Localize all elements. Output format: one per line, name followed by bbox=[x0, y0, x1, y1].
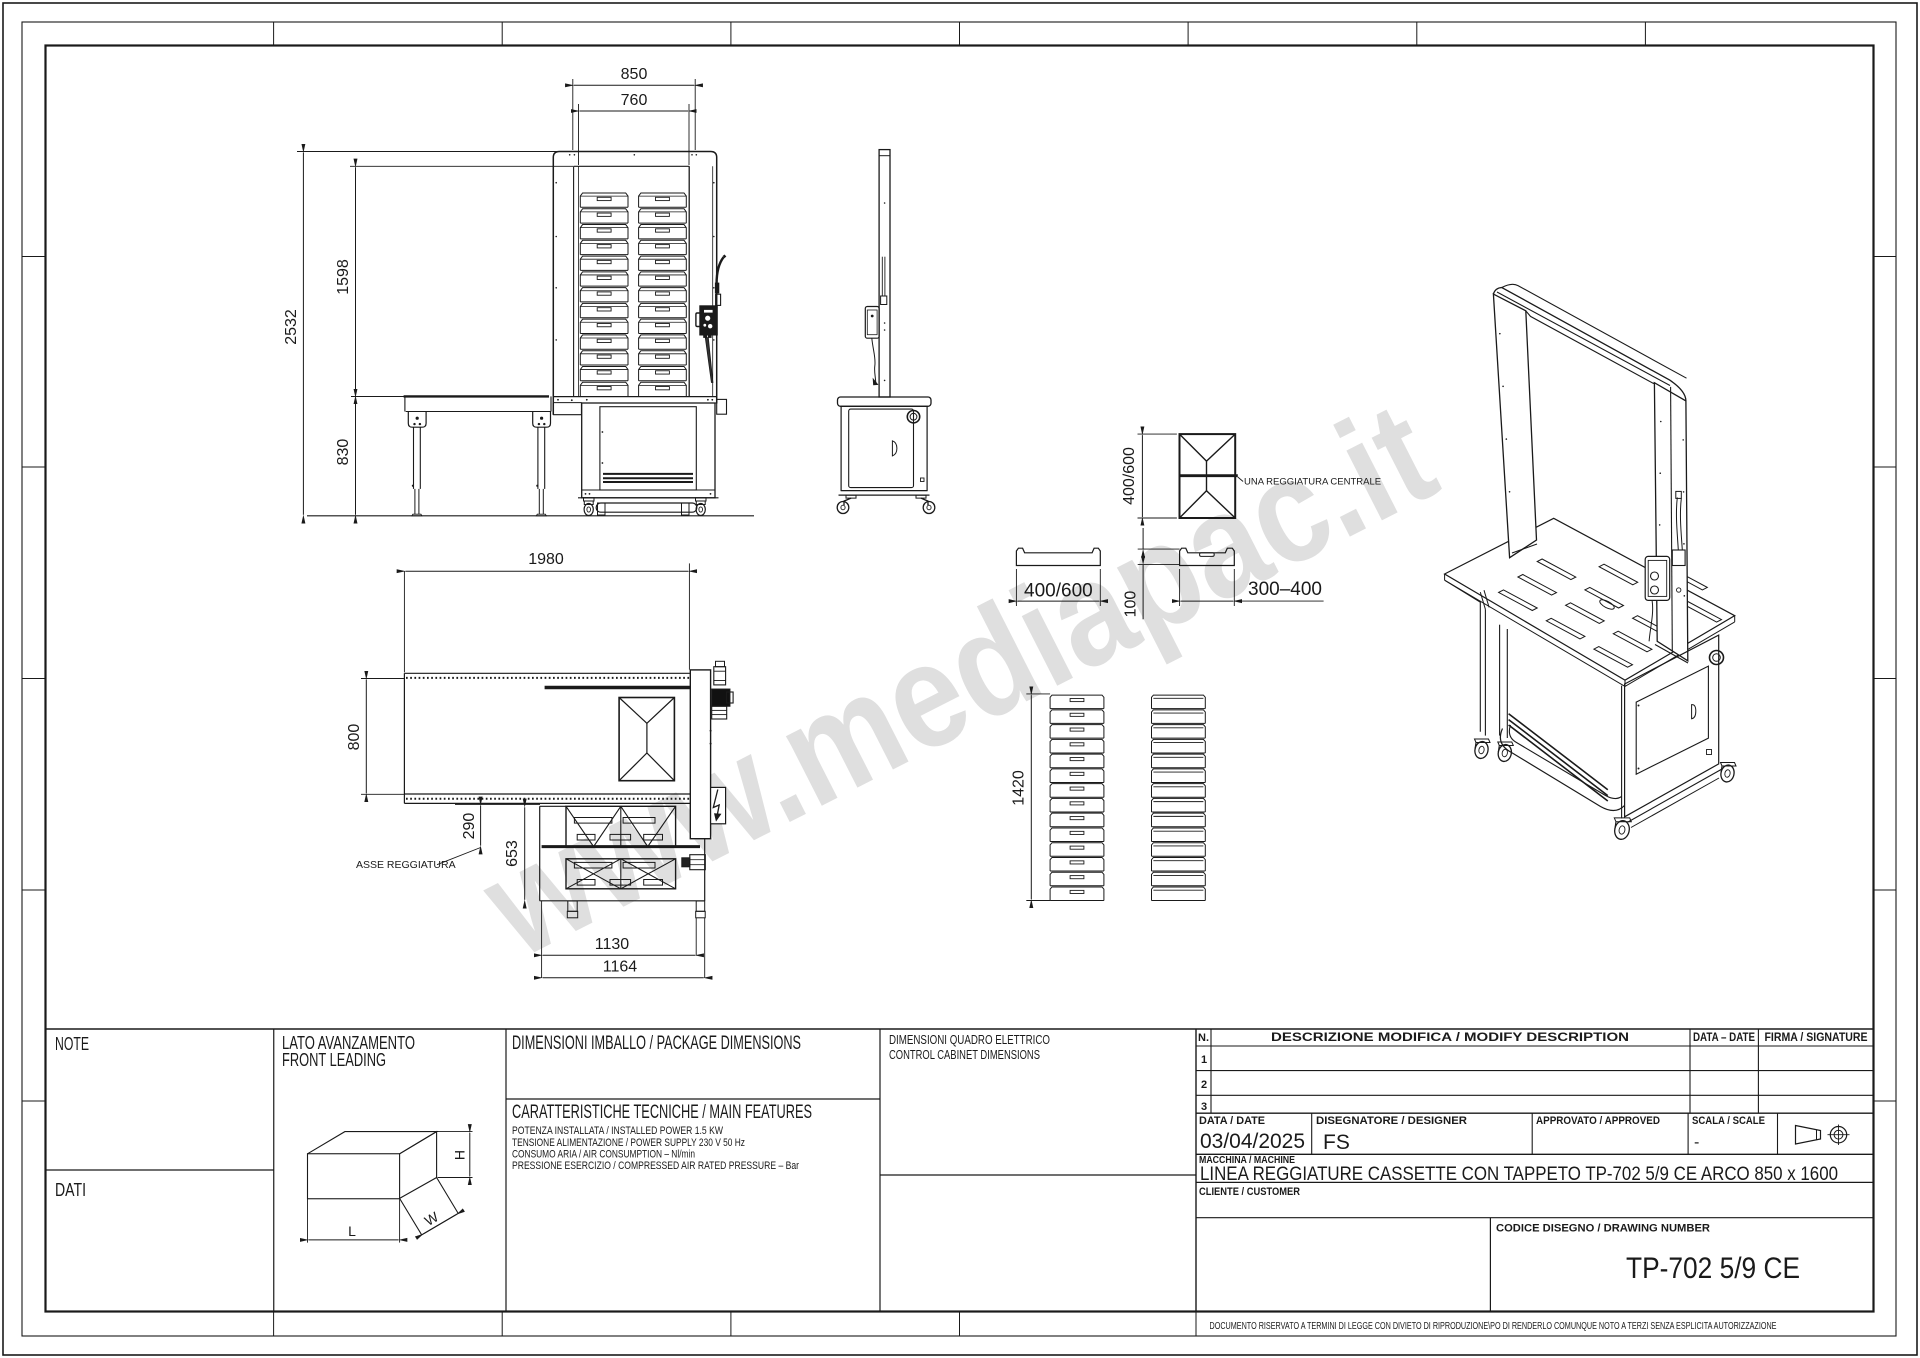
svg-text:TP-702 5/9 CE: TP-702 5/9 CE bbox=[1626, 1252, 1800, 1285]
svg-text:2532: 2532 bbox=[283, 309, 300, 345]
svg-text:POTENZA INSTALLATA / INSTALLED: POTENZA INSTALLATA / INSTALLED POWER 1.5… bbox=[512, 1125, 724, 1137]
svg-text:800: 800 bbox=[346, 724, 363, 751]
svg-text:FIRMA / SIGNATURE: FIRMA / SIGNATURE bbox=[1765, 1030, 1868, 1044]
svg-text:100: 100 bbox=[1123, 591, 1140, 618]
svg-text:N.: N. bbox=[1198, 1032, 1209, 1044]
svg-text:-: - bbox=[1694, 1134, 1699, 1151]
svg-text:CODICE DISEGNO / DRAWING N: CODICE DISEGNO / DRAWING NUMBER bbox=[1496, 1223, 1710, 1235]
svg-text:NOTE: NOTE bbox=[55, 1034, 89, 1054]
svg-text:3: 3 bbox=[1201, 1101, 1207, 1113]
svg-text:ASSE REGGIATURA: ASSE REGGIATURA bbox=[356, 859, 456, 871]
svg-text:LINEA REGGIATURE CASSETTE CON: LINEA REGGIATURE CASSETTE CON TAPPETO TP… bbox=[1200, 1163, 1838, 1185]
svg-text:1164: 1164 bbox=[603, 959, 638, 976]
svg-text:830: 830 bbox=[335, 439, 352, 466]
svg-text:290: 290 bbox=[461, 813, 478, 840]
svg-text:DIMENSIONI IMBALLO / PACKAGE D: DIMENSIONI IMBALLO / PACKAGE DIMENSIONS bbox=[512, 1033, 801, 1054]
svg-text:FS: FS bbox=[1323, 1131, 1350, 1154]
svg-text:L: L bbox=[348, 1223, 356, 1239]
svg-text:APPROVATO / APPROVED: APPROVATO / APPROVED bbox=[1536, 1115, 1660, 1127]
svg-text:1420: 1420 bbox=[1011, 770, 1028, 806]
svg-text:850: 850 bbox=[621, 66, 648, 83]
svg-text:1598: 1598 bbox=[335, 259, 352, 295]
svg-text:DATI: DATI bbox=[55, 1180, 86, 1200]
svg-text:CLIENTE / CUSTOMER: CLIENTE / CUSTOMER bbox=[1199, 1186, 1300, 1198]
svg-text:UNA REGGIATURA CENTRALE: UNA REGGIATURA CENTRALE bbox=[1244, 477, 1381, 488]
svg-text:DIMENSIONI QUADRO ELETTRICO: DIMENSIONI QUADRO ELETTRICO bbox=[889, 1032, 1050, 1047]
svg-text:1: 1 bbox=[1201, 1054, 1207, 1066]
svg-text:1980: 1980 bbox=[528, 551, 564, 568]
svg-text:400/600: 400/600 bbox=[1121, 447, 1138, 505]
svg-text:760: 760 bbox=[621, 92, 648, 109]
svg-text:400/600: 400/600 bbox=[1024, 581, 1093, 602]
svg-text:SCALA / SCALE: SCALA / SCALE bbox=[1692, 1115, 1765, 1127]
svg-text:DATA – DATE: DATA – DATE bbox=[1693, 1030, 1755, 1044]
svg-text:FRONT LEADING: FRONT LEADING bbox=[282, 1050, 386, 1070]
svg-text:03/04/2025: 03/04/2025 bbox=[1200, 1130, 1305, 1153]
svg-text:CONTROL CABINET DIMENSIONS: CONTROL CABINET DIMENSIONS bbox=[889, 1047, 1040, 1062]
svg-text:CARATTERISTICHE TECNICHE / MAI: CARATTERISTICHE TECNICHE / MAIN FEATURES bbox=[512, 1102, 812, 1123]
svg-text:DATA / DATE: DATA / DATE bbox=[1199, 1115, 1265, 1127]
svg-text:1130: 1130 bbox=[595, 936, 630, 953]
svg-text:DISEGNATORE / DESIGNER: DISEGNATORE / DESIGNER bbox=[1316, 1115, 1467, 1127]
svg-text:TENSIONE ALIMENTAZIONE / POWER: TENSIONE ALIMENTAZIONE / POWER SUPPLY 23… bbox=[512, 1137, 745, 1149]
svg-text:653: 653 bbox=[504, 840, 521, 867]
svg-text:300–400: 300–400 bbox=[1248, 579, 1322, 600]
svg-text:2: 2 bbox=[1201, 1079, 1207, 1091]
svg-text:PRESSIONE ESERCIZIO / COMPRESS: PRESSIONE ESERCIZIO / COMPRESSED AIR RAT… bbox=[512, 1160, 799, 1172]
svg-text:DOCUMENTO RISERVATO A TERMINI: DOCUMENTO RISERVATO A TERMINI DI LEGGE C… bbox=[1210, 1321, 1777, 1332]
svg-text:CONSUMO ARIA / AIR CONSUMPTION: CONSUMO ARIA / AIR CONSUMPTION – Nl/min bbox=[512, 1149, 695, 1161]
svg-text:H: H bbox=[452, 1150, 468, 1160]
svg-text:DESCRIZIONE MODIFICA / MODI: DESCRIZIONE MODIFICA / MODIFY DESCRIPTIO… bbox=[1271, 1030, 1629, 1044]
